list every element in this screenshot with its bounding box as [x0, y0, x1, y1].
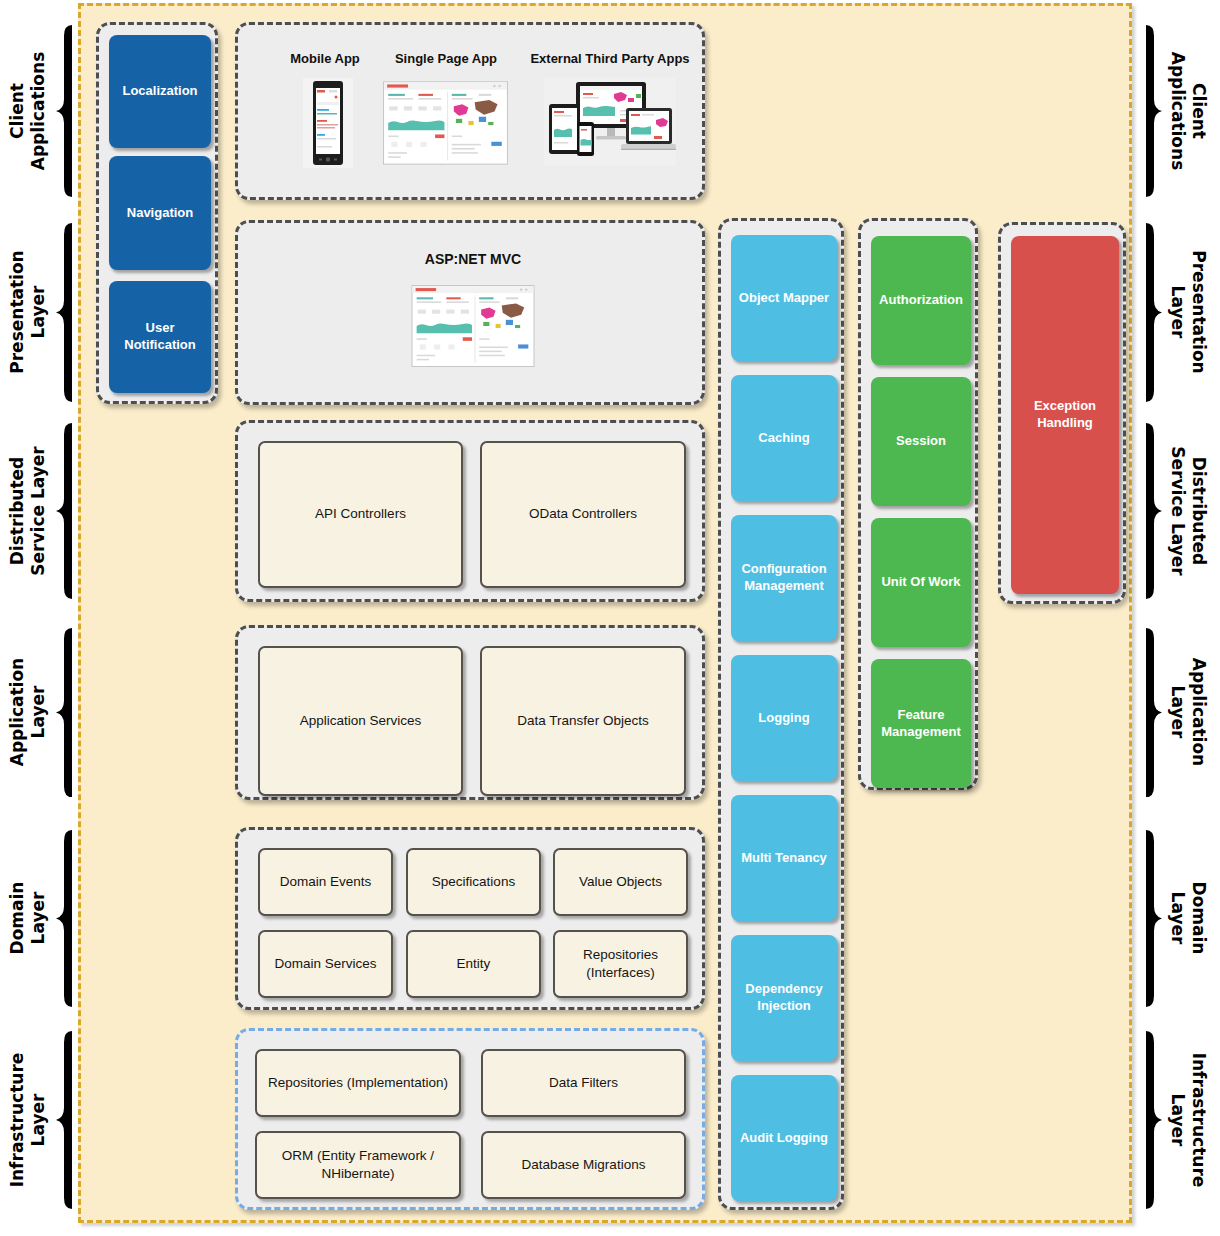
layer-label-left-client-applications: ClientApplications [0, 11, 56, 211]
mobile-app-thumbnail [303, 78, 353, 168]
module-object-mapper: Object Mapper [731, 235, 837, 361]
architecture-diagram: ClientApplications PresentationLayer Dis… [0, 0, 1220, 1236]
module-feature-management: Feature Management [871, 659, 971, 788]
module-session: Session [871, 377, 971, 506]
layer-label-right-client-applications: ClientApplications [1160, 11, 1216, 211]
box-application-services: Application Services [258, 646, 463, 796]
aspnet-mvc-label: ASP:NET MVC [238, 251, 708, 267]
box-data-filters: Data Filters [481, 1049, 686, 1117]
module-multi-tenancy: Multi Tenancy [731, 795, 837, 921]
module-navigation: Navigation [109, 156, 211, 270]
layer-label-left-application-layer: ApplicationLayer [0, 612, 56, 812]
layer-label-right-presentation-layer: PresentationLayer [1160, 212, 1216, 412]
layer-label-right-infrastructure-layer: InfrastructureLayer [1160, 1020, 1216, 1220]
module-exception-handling: Exception Handling [1011, 236, 1119, 594]
box-repositories-interfaces: Repositories (Interfaces) [553, 930, 688, 998]
box-data-transfer-objects: Data Transfer Objects [480, 646, 686, 796]
layer-label-right-application-layer: ApplicationLayer [1160, 612, 1216, 812]
box-odata-controllers: OData Controllers [480, 441, 686, 588]
module-dependency-injection: Dependency Injection [731, 935, 837, 1061]
aspnet-mvc-group: ASP:NET MVC [235, 220, 705, 405]
module-unit-of-work: Unit Of Work [871, 518, 971, 647]
module-configuration-management: Configuration Management [731, 515, 837, 641]
module-localization: Localization [109, 35, 211, 148]
box-domain-services: Domain Services [258, 930, 393, 998]
box-specifications: Specifications [406, 848, 541, 916]
single-page-app-thumbnail [383, 81, 508, 165]
external-apps-label: External Third Party Apps [520, 51, 700, 66]
box-value-objects: Value Objects [553, 848, 688, 916]
box-database-migrations: Database Migrations [481, 1131, 686, 1199]
box-entity: Entity [406, 930, 541, 998]
layer-label-left-presentation-layer: PresentationLayer [0, 212, 56, 412]
presentation-modules-group: Localization Navigation User Notificatio… [96, 22, 218, 404]
module-authorization: Authorization [871, 236, 971, 365]
layer-label-left-domain-layer: DomainLayer [0, 818, 56, 1018]
layer-label-right-domain-layer: DomainLayer [1160, 818, 1216, 1018]
module-audit-logging: Audit Logging [731, 1075, 837, 1201]
framework-services-group: Authorization Session Unit Of Work Featu… [858, 218, 978, 790]
module-caching: Caching [731, 375, 837, 501]
module-user-notification: User Notification [109, 281, 211, 393]
box-repositories-implementation: Repositories (Implementation) [255, 1049, 461, 1117]
module-logging: Logging [731, 655, 837, 781]
single-page-app-label: Single Page App [376, 51, 516, 66]
cross-cutting-group: Object Mapper Caching Configuration Mana… [718, 218, 844, 1210]
external-apps-thumbnail [544, 78, 676, 166]
aspnet-mvc-thumbnail [411, 285, 535, 367]
infrastructure-layer-group: Repositories (Implementation) Data Filte… [235, 1028, 705, 1210]
application-layer-group: Application Services Data Transfer Objec… [235, 625, 705, 800]
box-api-controllers: API Controllers [258, 441, 463, 588]
box-domain-events: Domain Events [258, 848, 393, 916]
layer-label-right-distributed-service-layer: DistributedService Layer [1160, 411, 1216, 611]
layer-label-left-distributed-service-layer: DistributedService Layer [0, 411, 56, 611]
client-applications-group: Mobile App Single Page App External Thir… [235, 22, 705, 200]
exception-handling-group: Exception Handling [998, 222, 1126, 604]
layer-label-left-infrastructure-layer: InfrastructureLayer [0, 1020, 56, 1220]
distributed-service-group: API Controllers OData Controllers [235, 420, 705, 602]
box-orm: ORM (Entity Framework / NHibernate) [255, 1131, 461, 1199]
mobile-app-label: Mobile App [255, 51, 395, 66]
domain-layer-group: Domain Events Specifications Value Objec… [235, 827, 705, 1010]
